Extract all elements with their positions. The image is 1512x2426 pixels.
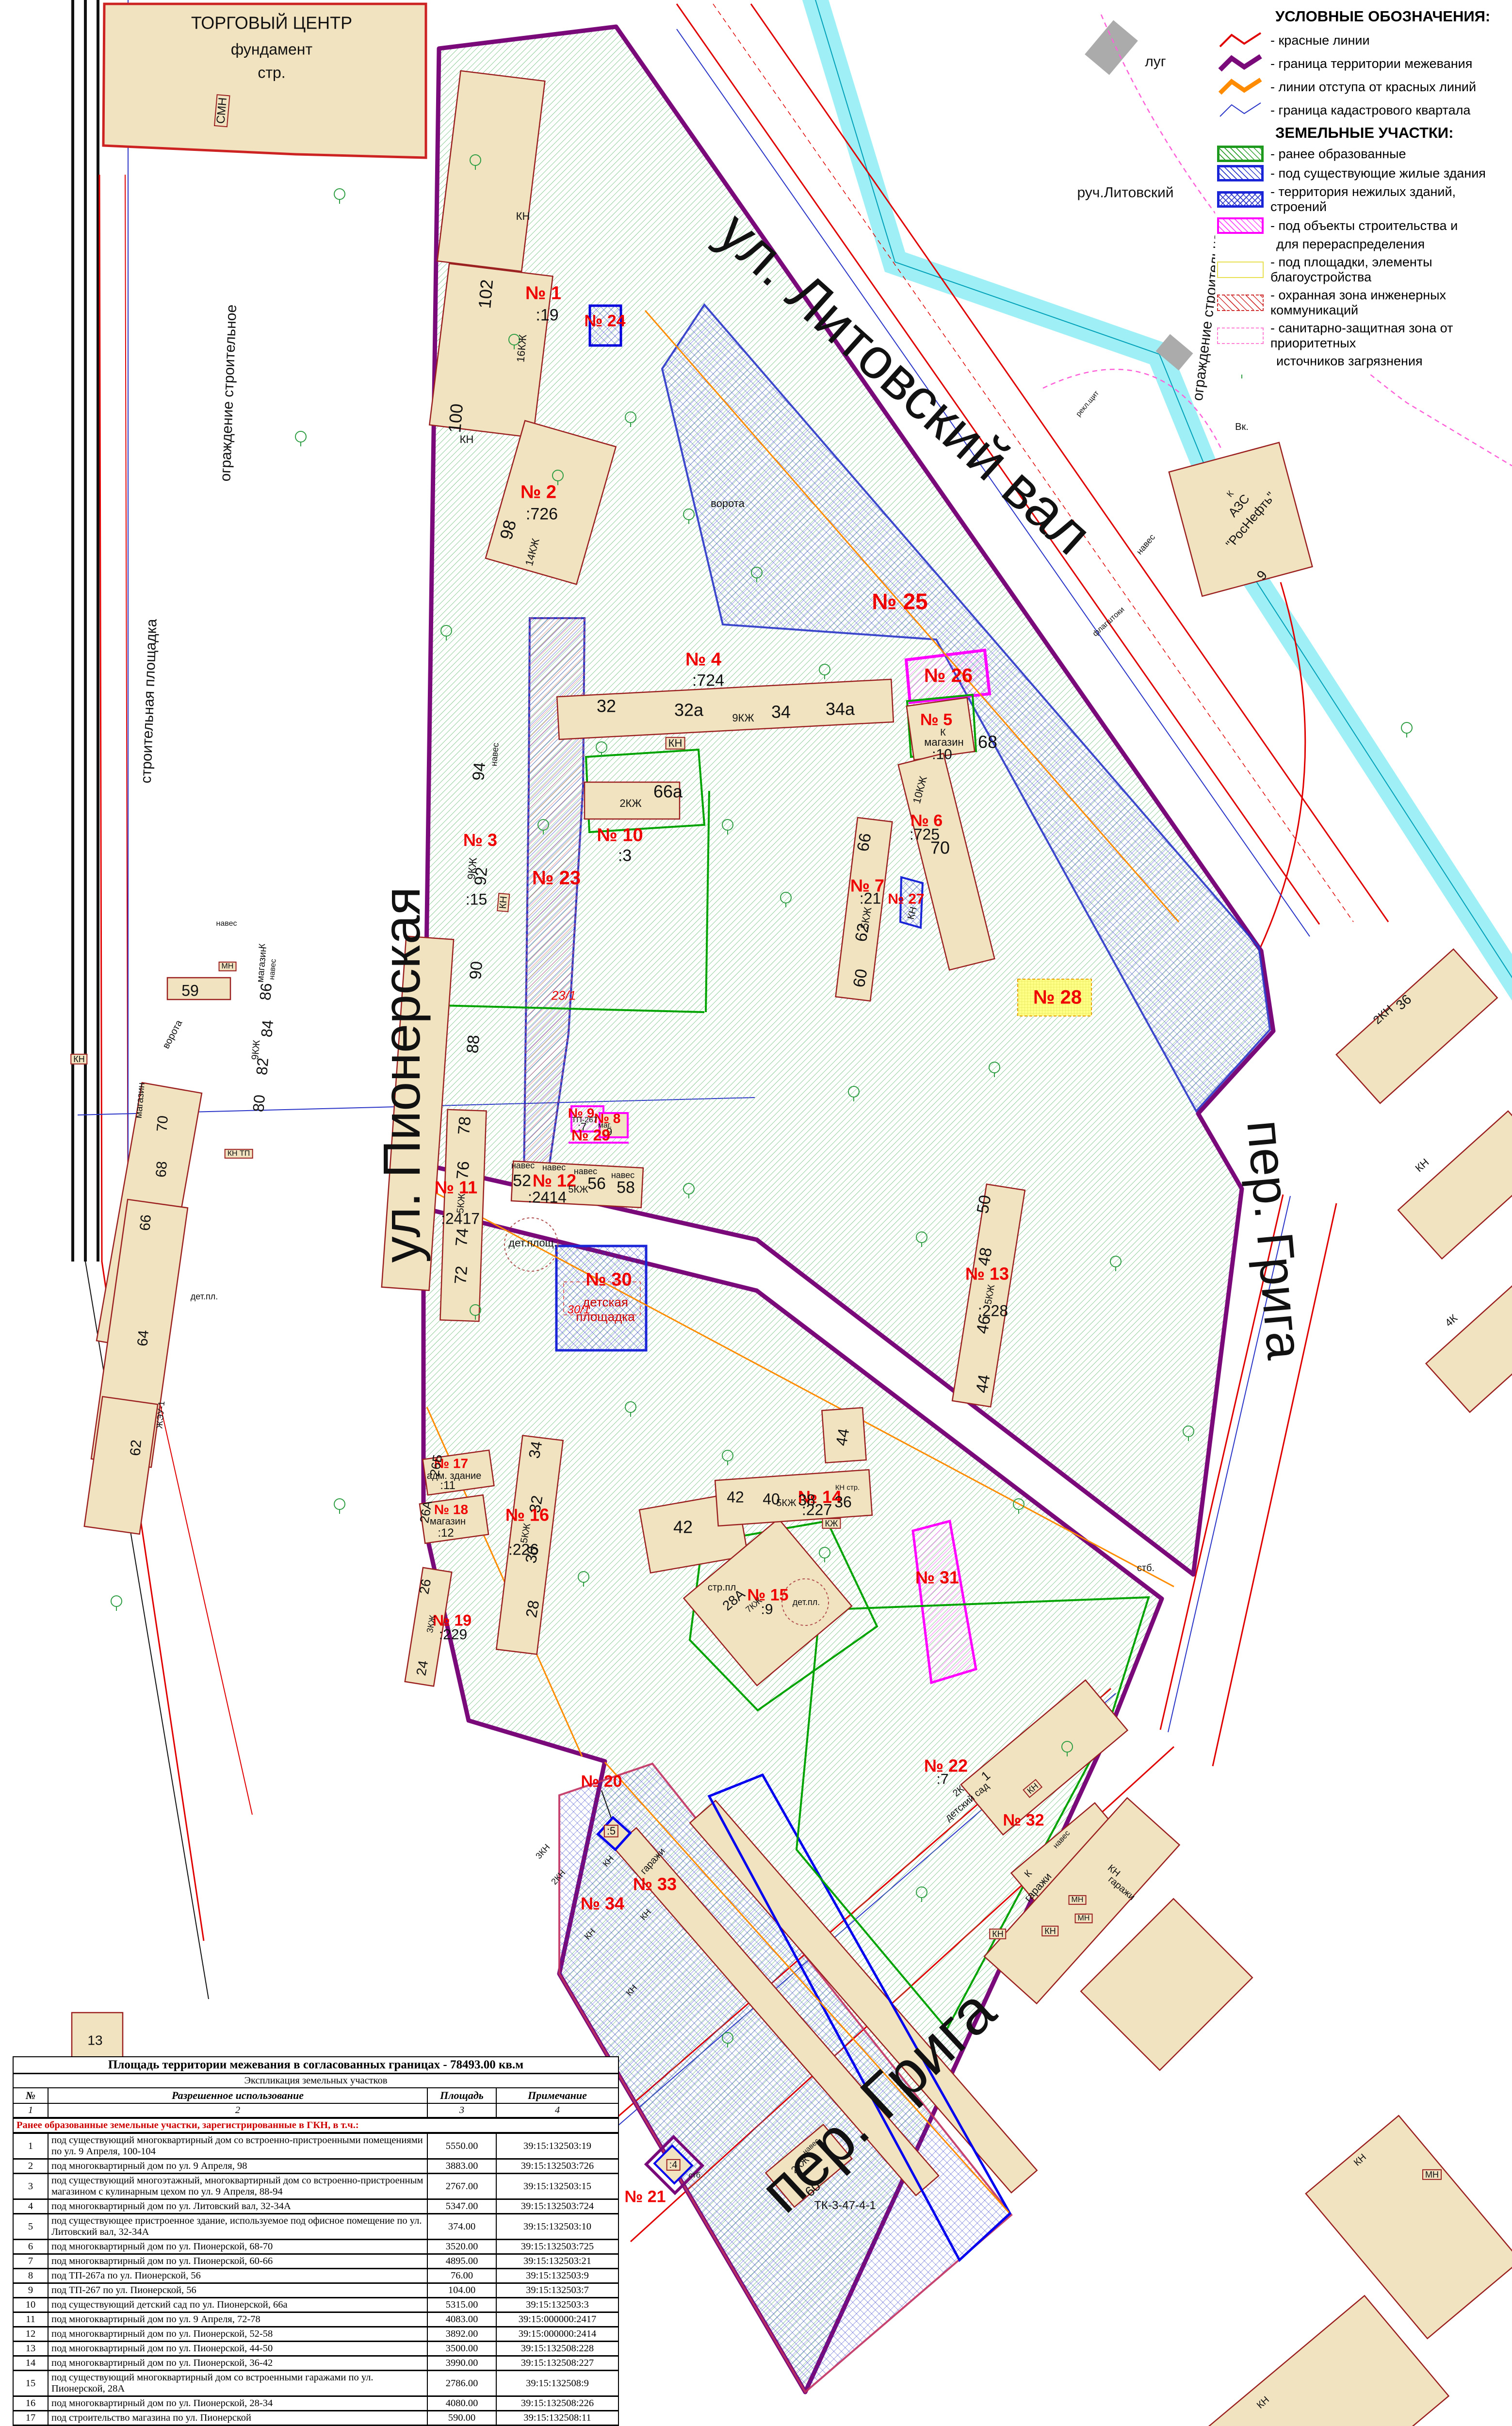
legend-label: - под существующие жилые здания [1270,166,1486,181]
table-row: 12под многоквартирный дом по ул. Пионерс… [13,2327,618,2342]
dam [1085,20,1138,75]
table-row: 7под многоквартирный дом по ул. Пионерск… [13,2254,618,2269]
legend-label: - граница кадастрового квартала [1270,103,1470,118]
cell: 104.00 [427,2283,496,2298]
cell: 3883.00 [427,2159,496,2174]
cell: 4 [13,2199,48,2214]
sanitary-zone-swatch [1217,328,1264,344]
cell: 39:15:132503:3 [496,2298,618,2312]
cell: под ТП-267а по ул. Пионерской, 56 [48,2269,427,2283]
cell: 15 [13,2371,48,2396]
cell: 10 [13,2298,48,2312]
table-row: 16под многоквартирный дом по ул. Пионерс… [13,2396,618,2411]
table-row: 8под ТП-267а по ул. Пионерской, 5676.003… [13,2269,618,2283]
legend-parcel-items: - ранее образованные- под существующие ж… [1217,146,1512,369]
cell: 39:15:132503:9 [496,2269,618,2283]
legend-parcels-title: ЗЕМЕЛЬНЫЕ УЧАСТКИ: [1275,124,1512,142]
setback-lines-icon [1217,77,1264,97]
cell: 39:15:000000:2414 [496,2327,618,2342]
cell: 39:15:132503:725 [496,2240,618,2254]
table-subtitle: Экспликация земельных участков [13,2074,618,2088]
legend-label: - территория нежилых зданий, строений [1270,184,1512,214]
zone-28 [1018,979,1091,1016]
cell: 5315.00 [427,2298,496,2312]
table-row: 6под многоквартирный дом по ул. Пионерск… [13,2240,618,2254]
legend-item-existing-residential: - под существующие жилые здания [1217,165,1512,181]
table-row: 13под многоквартирный дом по ул. Пионерс… [13,2342,618,2356]
cell: 39:15:132508:11 [496,2411,618,2426]
land-table: Площадь территории межевания в согласова… [13,2056,619,2426]
existing-residential-swatch [1217,165,1264,181]
cell: 5347.00 [427,2199,496,2214]
table-header-numbers: 1234 [13,2103,618,2118]
legend-label: - ранее образованные [1270,147,1406,162]
cell: 39:15:132503:10 [496,2214,618,2240]
zone-8 [600,1113,628,1137]
table-row: 15под существующий многоквартирный дом с… [13,2371,618,2396]
legend-item-construction-objects: - под объекты строительства и [1217,217,1512,234]
survey-boundary-icon [1217,53,1264,74]
cell: 39:15:132503:15 [496,2174,618,2199]
table-row: 11под многоквартирный дом по ул. 9 Апрел… [13,2312,618,2327]
cell: 2 [13,2159,48,2174]
earlier-formed-swatch [1217,146,1264,162]
cell: под многоквартирный дом по ул. Пионерско… [48,2342,427,2356]
table-row: 10под существующий детский сад по ул. Пи… [13,2298,618,2312]
legend-label: - под объекты строительства и [1270,218,1458,233]
cell: 8 [13,2269,48,2283]
cell: 1 [13,2103,48,2118]
legend-item-red-lines: - красные линии [1217,30,1512,50]
cell: 4 [496,2103,618,2118]
legend-label: для перераспределения [1276,237,1425,252]
cell: 3500.00 [427,2342,496,2356]
sheet: ул. Литовский валул. Пионерскаяпер. Григ… [0,0,1512,2426]
cell: 3892.00 [427,2327,496,2342]
cell: 1 [13,2133,48,2159]
cell: под существующий многоквартирный дом со … [48,2133,427,2159]
table-row: 3под существующий многоэтажный, многоква… [13,2174,618,2199]
table-row: 1под существующий многоквартирный дом со… [13,2133,618,2159]
cell: 3990.00 [427,2356,496,2371]
cell: 76.00 [427,2269,496,2283]
cell: 7 [13,2254,48,2269]
table-row: 14под многоквартирный дом по ул. Пионерс… [13,2356,618,2371]
legend-item-setback-lines: - линии отступа от красных линий [1217,77,1512,97]
cell: 3520.00 [427,2240,496,2254]
legend-item-sanitary-zone: - санитарно-защитная зона от приоритетны… [1217,321,1512,351]
legend-title: УСЛОВНЫЕ ОБОЗНАЧЕНИЯ: [1275,8,1512,25]
cell: 39:15:132508:226 [496,2396,618,2411]
cell: под существующий детский сад по ул. Пион… [48,2298,427,2312]
legend-item-earlier-formed: - ранее образованные [1217,146,1512,162]
cell: 39:15:132503:19 [496,2133,618,2159]
cell: 2 [48,2103,427,2118]
cell: под многоквартирный дом по ул. 9 Апреля,… [48,2312,427,2327]
non-residential-swatch [1217,191,1264,208]
cell: 374.00 [427,2214,496,2240]
cell: под многоквартирный дом по ул. Пионерско… [48,2356,427,2371]
legend-label: - охранная зона инженерных коммуникаций [1270,288,1512,318]
table-row: 5под существующее пристроенное здание, и… [13,2214,618,2240]
cell: 39:15:000000:2417 [496,2312,618,2327]
legend-label: - красные линии [1270,33,1370,48]
cell: 4083.00 [427,2312,496,2327]
cell: под многоквартирный дом по ул. Пионерско… [48,2396,427,2411]
cell: под многоквартирный дом по ул. Пионерско… [48,2240,427,2254]
cell: 14 [13,2356,48,2371]
legend-item-playgrounds: - под площадки, элементы благоустройства [1217,255,1512,285]
zone-27 [900,877,923,928]
cell: под многоквартирный дом по ул. Пионерско… [48,2254,427,2269]
cell: 39:15:132503:21 [496,2254,618,2269]
cell: 9 [13,2283,48,2298]
legend-label: - под площадки, элементы благоустройства [1270,255,1512,285]
cell: 11 [13,2312,48,2327]
cell: 39:15:132508:9 [496,2371,618,2396]
cell: под строительство магазина по ул. Пионер… [48,2411,427,2426]
cell: 39:15:132508:227 [496,2356,618,2371]
cell: 4895.00 [427,2254,496,2269]
table-header: №Разрешенное использованиеПлощадьПримеча… [13,2088,618,2103]
playgrounds-swatch [1217,262,1264,278]
cell: 2786.00 [427,2371,496,2396]
cell: 3 [427,2103,496,2118]
legend-item-non-residential: - территория нежилых зданий, строений [1217,184,1512,214]
cell: 13 [13,2342,48,2356]
cell: 6 [13,2240,48,2254]
cell: 39:15:132503:7 [496,2283,618,2298]
legend-line-items: - красные линии- граница территории меже… [1217,30,1512,120]
cell: 12 [13,2327,48,2342]
legend-label: - линии отступа от красных линий [1270,80,1476,95]
explication-table: Площадь территории межевания в согласова… [13,2056,619,2426]
cell: 5 [13,2214,48,2240]
cell: Разрешенное использование [48,2088,427,2103]
cell: 39:15:132503:724 [496,2199,618,2214]
cell: 39:15:132503:726 [496,2159,618,2174]
cell: 3 [13,2174,48,2199]
mall-building [103,4,426,158]
legend-label: - санитарно-защитная зона от приоритетны… [1270,321,1512,351]
cell: 39:15:132508:228 [496,2342,618,2356]
legend-item-utility-zone: - охранная зона инженерных коммуникаций [1217,288,1512,318]
cell: 2767.00 [427,2174,496,2199]
legend-item-cadastral-quarter: - граница кадастрового квартала [1217,100,1512,120]
cell: 17 [13,2411,48,2426]
cell: 4080.00 [427,2396,496,2411]
cell: под существующий многоэтажный, многоквар… [48,2174,427,2199]
legend-item-sanitary-zone-line2: источников загрязнения [1217,354,1512,369]
cell: № [13,2088,48,2103]
legend-label: - граница территории межевания [1270,56,1472,71]
table-row: 2под многоквартирный дом по ул. 9 Апреля… [13,2159,618,2174]
cell: Площадь территории межевания в согласова… [13,2057,618,2074]
legend-item-construction-objects-line2: для перераспределения [1217,237,1512,252]
cell: под ТП-267 по ул. Пионерской, 56 [48,2283,427,2298]
cell: под существующее пристроенное здание, ис… [48,2214,427,2240]
table-title: Площадь территории межевания в согласова… [13,2057,618,2074]
cell: под многоквартирный дом по ул. 9 Апреля,… [48,2159,427,2174]
cell: Примечание [496,2088,618,2103]
cell: под существующий многоквартирный дом со … [48,2371,427,2396]
legend: УСЛОВНЫЕ ОБОЗНАЧЕНИЯ: - красные линии- г… [1215,3,1512,375]
table-row: 4под многоквартирный дом по ул. Литовски… [13,2199,618,2214]
section-row: Ранее образованные земельные участки, за… [13,2118,618,2133]
cell: под многоквартирный дом по ул. Литовский… [48,2199,427,2214]
zone-24 [590,306,621,345]
legend-item-survey-boundary: - граница территории межевания [1217,53,1512,74]
utility-zone-swatch [1217,295,1264,311]
cell: 590.00 [427,2411,496,2426]
table-row: 9под ТП-267 по ул. Пионерской, 56104.003… [13,2283,618,2298]
cell: под многоквартирный дом по ул. Пионерско… [48,2327,427,2342]
table-row: 17под строительство магазина по ул. Пион… [13,2411,618,2426]
cell: Ранее образованные земельные участки, за… [13,2118,618,2133]
cell: 16 [13,2396,48,2411]
cadastral-quarter-icon [1217,100,1264,120]
cell: Экспликация земельных участков [13,2074,618,2088]
red-lines-icon [1217,30,1264,50]
cell: 5550.00 [427,2133,496,2159]
cell: Площадь [427,2088,496,2103]
construction-objects-swatch [1217,217,1264,234]
legend-label: источников загрязнения [1276,354,1423,369]
